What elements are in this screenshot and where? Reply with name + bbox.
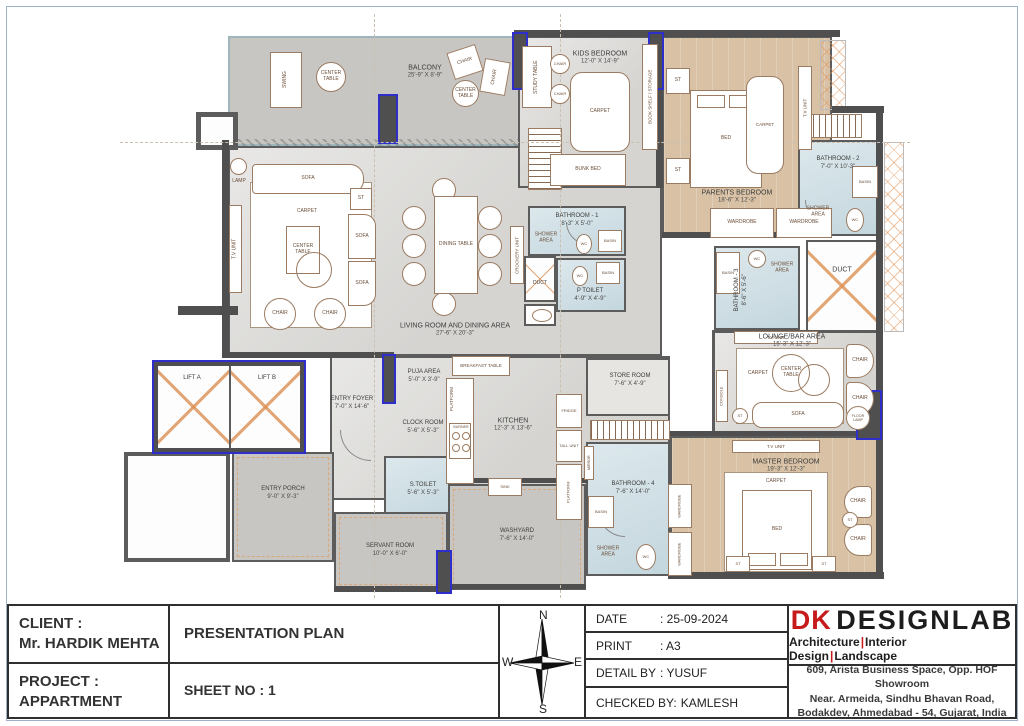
room-label-parents: PARENTS BEDROOM18'-6" X 12'-3" bbox=[702, 189, 773, 206]
room-label-kitchen: KITCHEN12'-3" X 13'-6" bbox=[494, 417, 532, 434]
dining-chair bbox=[478, 234, 502, 258]
room-label-lounge: LOUNGE/BAR AREA15'-3" X 12'-3" bbox=[759, 333, 826, 350]
client-cell: CLIENT : Mr. HARDIK MEHTA bbox=[7, 604, 170, 664]
chair: CHAIR bbox=[550, 54, 570, 74]
console: CONSOLE bbox=[716, 370, 728, 422]
side-table: ST bbox=[350, 188, 372, 210]
breakfast-table: BREAKFAST TABLE bbox=[452, 356, 510, 376]
shower-area-label: SHOWER AREA bbox=[529, 232, 563, 244]
tv-unit: T.V UNIT bbox=[229, 205, 242, 293]
wall bbox=[222, 352, 394, 358]
study-table: STUDY TABLE bbox=[522, 46, 552, 108]
room-label-clock: CLOCK ROOM5'-6" X 5'-3" bbox=[402, 420, 443, 436]
room-label-master: MASTER BEDROOM19'-3" X 12'-3" bbox=[752, 458, 819, 475]
print-value: : A3 bbox=[660, 639, 681, 653]
wall bbox=[514, 30, 840, 37]
address-cell: 609, Arista Business Space, Opp. HOF Sho… bbox=[787, 664, 1017, 719]
project-cell: PROJECT : APPARTMENT bbox=[7, 662, 170, 719]
room-label-lift-a: LIFT A bbox=[183, 375, 201, 383]
print-row: PRINT: A3 bbox=[584, 631, 789, 660]
dining-table: DINING TABLE bbox=[434, 196, 478, 294]
tall-unit: TALL UNIT bbox=[556, 430, 582, 462]
wc: WC bbox=[636, 544, 656, 570]
compass-north-label: N bbox=[539, 608, 548, 622]
logo-designlab-text: DESIGNLAB bbox=[836, 605, 1013, 635]
plan-title-cell: PRESENTATION PLAN bbox=[168, 604, 500, 664]
side-table: ST bbox=[666, 68, 690, 94]
shelf-hatch-bath4 bbox=[590, 420, 670, 440]
book-shelf: BOOK SHELF / STORAGE bbox=[642, 44, 658, 150]
tv-unit: T.V UNIT bbox=[798, 66, 812, 150]
logo-cell: DK DESIGNLAB Architecture|Interior Desig… bbox=[787, 604, 1017, 666]
dining-chair bbox=[402, 206, 426, 230]
compass-south-label: S bbox=[539, 702, 547, 716]
room-label-balcony: BALCONY25'-9" X 8'-9" bbox=[408, 64, 443, 81]
fridge: FRIDGE bbox=[556, 394, 582, 428]
date-value: : 25-09-2024 bbox=[660, 612, 728, 626]
firm-address-line1: 609, Arista Business Space, Opp. HOF Sho… bbox=[789, 663, 1015, 691]
carpet: CARPET bbox=[746, 76, 784, 174]
dining-chair bbox=[478, 206, 502, 230]
print-label: PRINT bbox=[596, 639, 660, 653]
detail-by-label: DETAIL BY bbox=[596, 666, 660, 680]
room-label-porch: ENTRY PORCH9'-0" X 9'-3" bbox=[261, 486, 304, 502]
firm-address-line3: Bodakdev, Ahmedabad - 54, Gujarat, India bbox=[798, 706, 1007, 720]
wc: WC bbox=[748, 250, 766, 268]
project-label: PROJECT : bbox=[19, 672, 168, 692]
wall-niche bbox=[196, 112, 238, 150]
chair: CHAIR bbox=[264, 298, 296, 330]
pillar bbox=[384, 356, 394, 402]
wc: WC bbox=[572, 266, 588, 286]
kitchen-platform: PLATFORM bbox=[556, 464, 582, 520]
basin-icon bbox=[532, 309, 552, 322]
room-label-bathroom1: BATHROOM - 18'-3" X 5'-0" bbox=[556, 213, 599, 229]
floor-lamp: FLOOR LAMP bbox=[846, 406, 870, 430]
date-label: DATE bbox=[596, 612, 660, 626]
firm-logo: DK DESIGNLAB bbox=[791, 607, 1013, 634]
wall bbox=[448, 584, 586, 589]
basin: BASIN bbox=[596, 262, 620, 284]
kitchen-platform: PLATFORM BURNER bbox=[446, 378, 474, 484]
room-label-store: STORE ROOM7'-6" X 4'-9" bbox=[610, 373, 651, 389]
burner: BURNER bbox=[449, 423, 471, 459]
side-table: ST bbox=[842, 512, 858, 528]
open-room bbox=[124, 452, 230, 562]
room-label-kids: KIDS BEDROOM12'-0" X 14'-9" bbox=[573, 50, 627, 67]
sheet-no: SHEET NO : 1 bbox=[184, 681, 276, 700]
tv-unit: T.V UNIT bbox=[732, 440, 820, 453]
tagline-landscape: Landscape bbox=[834, 649, 897, 663]
carpet-label: CARPET bbox=[748, 371, 768, 377]
client-name: Mr. HARDIK MEHTA bbox=[19, 634, 168, 654]
room-label-duct-left: DUCT bbox=[533, 280, 547, 287]
wall bbox=[334, 586, 448, 592]
mirror: MIRROR bbox=[584, 446, 594, 480]
basin: BASIN bbox=[588, 496, 614, 528]
side-table: ST bbox=[666, 158, 690, 184]
room-label-bathroom2: BATHROOM - 27'-0" X 10'-3" bbox=[817, 156, 860, 172]
dining-chair bbox=[402, 262, 426, 286]
grid-line bbox=[120, 142, 910, 143]
detail-by-row: DETAIL BY: YUSUF bbox=[584, 658, 789, 688]
grid-line bbox=[374, 14, 375, 598]
wall bbox=[668, 572, 884, 579]
room-label-washyard: WASHYARD7'-6" X 14'-0" bbox=[500, 528, 535, 544]
room-label-duct-right: DUCT bbox=[832, 265, 851, 274]
room-entry-porch bbox=[232, 452, 334, 562]
room-label-bathroom3: BATHROOM - 38'-6" X 5'-6" bbox=[734, 269, 750, 312]
side-table: ST bbox=[732, 408, 748, 424]
swing: SWING bbox=[270, 52, 302, 108]
wardrobe: WARDROBE bbox=[668, 532, 692, 576]
wall bbox=[670, 431, 882, 436]
sofa: SOFA bbox=[348, 214, 376, 259]
shower-area-label: SHOWER AREA bbox=[591, 546, 625, 558]
sofa: SOFA bbox=[252, 164, 364, 194]
lift-block bbox=[154, 362, 304, 452]
sheet-no-cell: SHEET NO : 1 bbox=[168, 662, 500, 719]
room-duct-right bbox=[806, 240, 878, 332]
room-label-puja: PUJA AREA5'-0" X 3'-9" bbox=[408, 369, 441, 385]
checked-by-value: KAMLESH bbox=[681, 696, 738, 710]
center-table: CENTER TABLE bbox=[316, 62, 346, 92]
bed: BED bbox=[742, 490, 812, 570]
dining-chair bbox=[432, 292, 456, 316]
checked-by-row: CHECKED BY:KAMLESH bbox=[584, 686, 789, 719]
lamp-label: LAMP bbox=[232, 179, 246, 185]
chair: CHAIR bbox=[314, 298, 346, 330]
dining-chair bbox=[478, 262, 502, 286]
firm-address-line2: Near. Armeida, Sindhu Bhavan Road, bbox=[810, 692, 995, 706]
bunk-bed: BUNK BED bbox=[550, 154, 626, 186]
pillar bbox=[438, 552, 450, 592]
room-label-living: LIVING ROOM AND DINING AREA27'-6" X 20'-… bbox=[400, 322, 510, 339]
room-label-p-toilet: P TOILET4'-9" X 4'-9" bbox=[574, 288, 605, 304]
planter-strip-top bbox=[820, 40, 846, 110]
shower-area-label: SHOWER AREA bbox=[801, 206, 835, 218]
lamp bbox=[230, 158, 247, 175]
compass-west-label: W bbox=[502, 655, 513, 669]
dining-chair bbox=[402, 234, 426, 258]
crockery-unit: CROCKERY UNIT bbox=[510, 226, 524, 284]
wall bbox=[178, 306, 238, 315]
compass-cell: N S W E bbox=[498, 604, 586, 719]
pillar bbox=[380, 96, 396, 142]
room-label-foyer: ENTRY FOYER7'-0" X 14'-6" bbox=[331, 396, 373, 412]
center-table-round bbox=[296, 252, 332, 288]
sink: SINK bbox=[488, 478, 522, 496]
wc: WC bbox=[846, 208, 864, 232]
wardrobe: WARDROBE bbox=[710, 208, 774, 238]
wc: WC bbox=[576, 234, 592, 254]
center-table-round bbox=[798, 364, 830, 396]
sofa: SOFA bbox=[752, 402, 844, 428]
carpet-label: CARPET bbox=[766, 479, 786, 485]
room-label-lift-b: LIFT B bbox=[258, 375, 276, 383]
room-label-s-toilet: S.TOILET5'-6" X 5'-3" bbox=[407, 482, 438, 498]
tagline-architecture: Architecture bbox=[789, 635, 860, 649]
client-label: CLIENT : bbox=[19, 614, 168, 634]
floor-plan: SWING CENTER TABLE CHAIR CENTER TABLE CH… bbox=[0, 0, 1024, 600]
basin-nook bbox=[524, 304, 556, 326]
shower-area-label: SHOWER AREA bbox=[765, 262, 799, 274]
detail-by-value: : YUSUF bbox=[660, 666, 707, 680]
room-label-bathroom4: BATHROOM - 47'-6" X 14'-0" bbox=[612, 481, 655, 497]
checked-by-label: CHECKED BY: bbox=[596, 696, 677, 710]
firm-tagline: Architecture|Interior Design|Landscape bbox=[789, 635, 1015, 663]
presentation-plan-sheet: SWING CENTER TABLE CHAIR CENTER TABLE CH… bbox=[0, 0, 1024, 726]
wall bbox=[222, 140, 229, 358]
room-label-servant: SERVANT ROOM10'-0" X 6'-0" bbox=[366, 543, 414, 559]
plan-title: PRESENTATION PLAN bbox=[184, 624, 344, 644]
compass-east-label: E bbox=[574, 655, 582, 669]
sofa: SOFA bbox=[348, 261, 376, 306]
date-row: DATE: 25-09-2024 bbox=[584, 604, 789, 633]
wardrobe: WARDROBE bbox=[668, 484, 692, 528]
center-table: CENTER TABLE bbox=[452, 80, 479, 107]
logo-dk-text: DK bbox=[791, 605, 832, 635]
side-table: ST bbox=[812, 556, 836, 572]
carpet-label: CARPET bbox=[297, 209, 317, 215]
carpet: CARPET bbox=[570, 72, 630, 152]
planter-strip-right bbox=[884, 142, 904, 332]
side-table: ST bbox=[726, 556, 750, 572]
project-name: APPARTMENT bbox=[19, 692, 168, 712]
chair: CHAIR bbox=[844, 524, 872, 556]
chair: CHAIR bbox=[550, 84, 570, 104]
basin: BASIN bbox=[598, 230, 622, 252]
